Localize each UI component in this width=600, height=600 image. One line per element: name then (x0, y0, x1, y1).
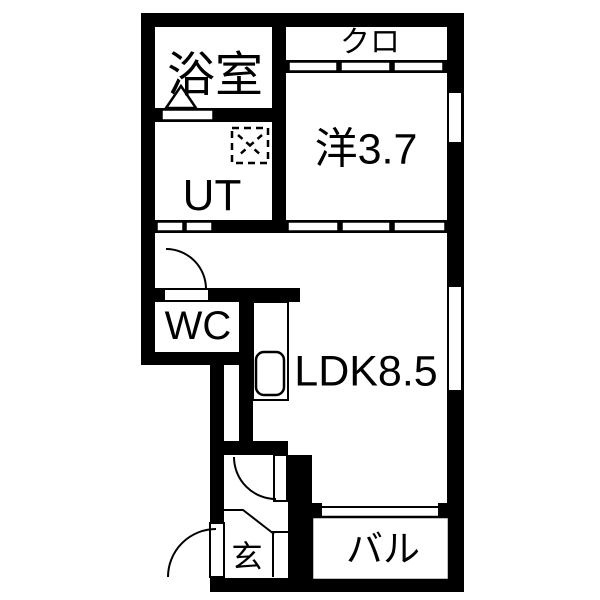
closet-slider-panel-2 (341, 62, 390, 71)
bathroom-label: 浴室 (167, 52, 263, 100)
wall-top (141, 13, 464, 27)
western-room-label: 洋3.7 (315, 129, 418, 172)
western-room-window (449, 93, 461, 142)
balcony-label: バル (346, 531, 420, 568)
balcony-sliding-window (322, 503, 438, 517)
ldk-hall-door-arc (234, 457, 276, 499)
floor-plan: 浴室 UT クロ 洋3.7 WC LDK8.5 玄 バル (0, 0, 600, 600)
wall-left (141, 13, 155, 365)
wall-entrance-right (288, 455, 312, 592)
wall-wc-bottom (141, 352, 253, 365)
bathroom-sliding-door (162, 110, 213, 120)
front-door-leaf (210, 523, 224, 577)
washing-machine-pan-icon (232, 128, 268, 163)
western-slider-panel-2 (342, 222, 390, 231)
wall-bath-closet-divider (272, 13, 286, 233)
shoe-cabinet (273, 532, 288, 577)
closet-slider-panel-1 (289, 62, 337, 71)
floor-plan-drawing (0, 0, 600, 600)
entrance-step-line (224, 510, 274, 534)
front-door-arc (168, 529, 216, 577)
wall-kitchen-vertical (239, 288, 253, 443)
wc-label: WC (165, 306, 232, 346)
utility-door-panel-2 (186, 222, 212, 231)
kitchen-sink-icon (256, 352, 284, 395)
wc-door-arc (166, 249, 206, 289)
closet-label: クロ (340, 28, 400, 58)
closet-slider-panel-3 (394, 62, 443, 71)
utility-door-panel-1 (157, 222, 183, 231)
utility-label: UT (183, 174, 242, 218)
western-slider-panel-1 (288, 222, 338, 231)
wall-vestibule-top (224, 441, 288, 455)
ldk-label: LDK8.5 (294, 351, 437, 394)
entrance-label: 玄 (232, 542, 263, 573)
wc-door-leaf (164, 289, 209, 301)
western-slider-panel-3 (394, 222, 445, 231)
ldk-window (449, 287, 461, 390)
ldk-hall-door-leaf (274, 455, 287, 501)
